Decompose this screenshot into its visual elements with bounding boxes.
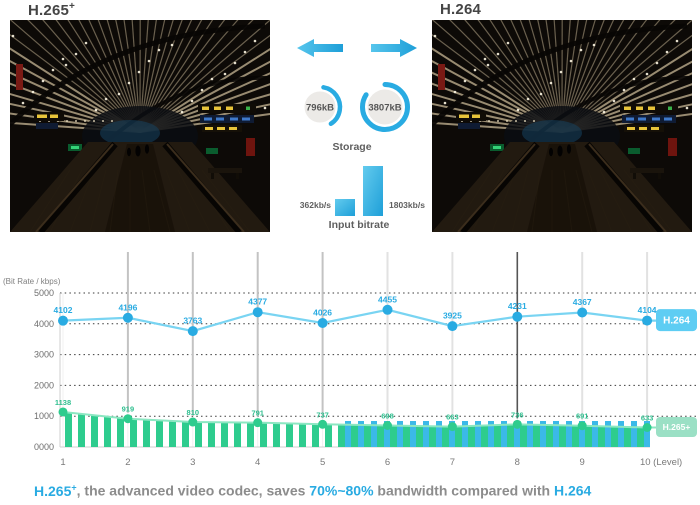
caption-segment: , the advanced video codec, saves xyxy=(77,483,310,499)
x-tick-label: 4 xyxy=(255,457,260,468)
y-tick-label: 5000 xyxy=(34,288,54,298)
y-tick-label: 2000 xyxy=(34,380,54,390)
h265-point-1 xyxy=(59,407,68,416)
svg-text:H.265+: H.265+ xyxy=(663,422,691,432)
x-axis-labels: 12345678910 (Level) xyxy=(60,457,682,468)
h265-legend-badge: H.265+ xyxy=(656,417,697,437)
left-arrow-icon xyxy=(297,38,343,58)
h264-value-label: 3925 xyxy=(443,311,462,321)
h264-value-label: 4367 xyxy=(573,297,592,307)
input-bitrate-bars xyxy=(335,163,385,216)
left-codec-name: H.265 xyxy=(28,2,69,19)
right-arrow-icon xyxy=(371,38,417,58)
h265-point-8 xyxy=(513,420,522,429)
h265-value-label: 919 xyxy=(122,405,135,414)
storage-gauge-h264: 3807kB xyxy=(356,78,414,136)
h265-point-7 xyxy=(448,422,457,431)
y-axis-title: (Bit Rate / kbps) xyxy=(3,277,61,286)
right-codec-name: H.264 xyxy=(440,1,481,18)
x-tick-label: 9 xyxy=(580,457,585,468)
h265-value-label: 663 xyxy=(446,413,459,422)
h264-value-label: 3763 xyxy=(183,316,202,326)
h265-point-10 xyxy=(643,423,652,432)
h265-point-3 xyxy=(188,418,197,427)
h264-value-label: 4196 xyxy=(118,302,137,312)
h265-value-label: 737 xyxy=(316,410,329,419)
caption-segment: H.264 xyxy=(554,483,591,499)
h264-value-label: 4104 xyxy=(638,305,657,315)
caption-segment: H.265+ xyxy=(34,483,77,499)
codec-comparison-infographic: H.265+ H.264 796kB 3807kB Storage 362kb/… xyxy=(0,0,700,505)
y-tick-label: 0000 xyxy=(34,442,54,452)
h265-value-label: 691 xyxy=(576,412,589,421)
h265-point-6 xyxy=(383,421,392,430)
h264-value-label: 4102 xyxy=(54,305,73,315)
storage-value-h265: 796kB xyxy=(306,103,334,114)
input-bitrate-label: Input bitrate xyxy=(302,219,416,231)
h264-point-8 xyxy=(512,312,522,322)
h265-value-label: 736 xyxy=(511,410,524,419)
x-tick-label: 8 xyxy=(515,457,520,468)
h264-point-10 xyxy=(642,316,652,326)
h264-value-label: 4231 xyxy=(508,301,527,311)
h265-point-4 xyxy=(253,418,262,427)
h264-point-5 xyxy=(318,318,328,328)
level-marker-lines xyxy=(128,252,647,422)
h265-hatch-area xyxy=(63,412,647,447)
x-tick-label: 1 xyxy=(60,457,65,468)
caption-segment: bandwidth compared with xyxy=(374,483,554,499)
h264-series: 4102419637634377402644553925423143674104 xyxy=(54,294,657,336)
h264-value-label: 4026 xyxy=(313,307,332,317)
h264-point-3 xyxy=(188,326,198,336)
x-tick-label: 5 xyxy=(320,457,325,468)
h264-point-2 xyxy=(123,313,133,323)
h264-point-1 xyxy=(58,316,68,326)
h264-bitrate-bar xyxy=(363,166,383,216)
h265-bitrate-value: 362kb/s xyxy=(276,200,331,210)
x-tick-label: 10 (Level) xyxy=(640,457,682,468)
h264-value-label: 4377 xyxy=(248,297,267,307)
h265-value-label: 633 xyxy=(641,414,654,423)
h264-legend-badge: H.264 xyxy=(656,309,697,331)
caption-segment: 70%~80% xyxy=(309,483,373,499)
h264-point-4 xyxy=(253,307,263,317)
y-tick-label: 1000 xyxy=(34,411,54,421)
storage-gauge-h265: 796kB xyxy=(294,81,346,133)
y-tick-label: 4000 xyxy=(34,319,54,329)
h265-value-label: 791 xyxy=(251,409,264,418)
x-tick-label: 2 xyxy=(125,457,130,468)
h265-value-label: 1138 xyxy=(55,398,71,407)
h264-value-label: 4455 xyxy=(378,294,397,304)
h264-sample-image xyxy=(432,20,692,232)
h264-point-7 xyxy=(447,321,457,331)
y-tick-label: 3000 xyxy=(34,350,54,360)
h265-point-2 xyxy=(123,414,132,423)
left-codec-plus: + xyxy=(69,1,75,12)
left-panel-title: H.265+ xyxy=(28,1,75,19)
bitrate-chart: 1138919810791737698663736691633410241963… xyxy=(0,250,700,485)
h265-bitrate-bar xyxy=(335,199,355,216)
x-tick-label: 3 xyxy=(190,457,195,468)
right-panel-title: H.264 xyxy=(440,1,481,18)
x-tick-label: 7 xyxy=(450,457,455,468)
h265-point-9 xyxy=(578,421,587,430)
storage-label: Storage xyxy=(302,141,402,153)
h264-bitrate-value: 1803kb/s xyxy=(389,200,449,210)
storage-value-h264: 3807kB xyxy=(368,103,401,114)
h264-point-6 xyxy=(383,305,393,315)
h265-value-label: 698 xyxy=(381,412,394,421)
h265-sample-image xyxy=(10,20,270,232)
h264-point-9 xyxy=(577,307,587,317)
x-tick-label: 6 xyxy=(385,457,390,468)
y-axis-labels: (Bit Rate / kbps)50004000300020001000000… xyxy=(3,277,61,452)
svg-text:H.264: H.264 xyxy=(663,316,690,327)
caption: H.265+, the advanced video codec, saves … xyxy=(34,482,591,499)
h265-value-label: 810 xyxy=(187,408,200,417)
h265-point-5 xyxy=(318,420,327,429)
